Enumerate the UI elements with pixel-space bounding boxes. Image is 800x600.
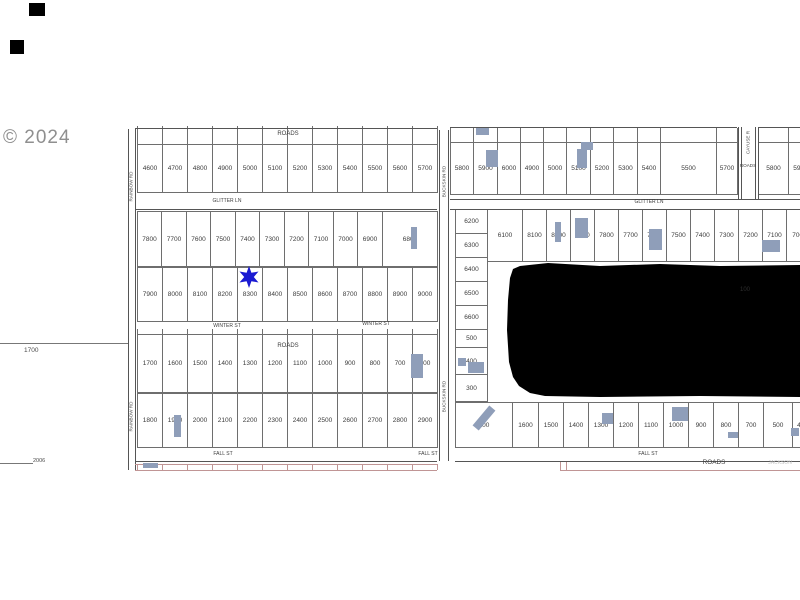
blob-lot-label: 100 — [740, 287, 750, 293]
parcel-7500[interactable]: 7500 — [210, 211, 236, 267]
parcel-8000[interactable]: 8000 — [162, 267, 188, 322]
lot-tick — [262, 329, 263, 335]
road-line — [738, 127, 739, 199]
building-footprint — [649, 229, 662, 250]
lot-tick — [637, 128, 638, 142]
parcel-1700[interactable]: 1700 — [137, 334, 163, 393]
parcel-2100[interactable]: 2100 — [212, 393, 238, 448]
parcel-7800[interactable]: 7800 — [594, 209, 619, 262]
lot-tick — [543, 128, 544, 142]
building-footprint — [411, 227, 417, 249]
parcel-4900[interactable]: 4900 — [520, 142, 544, 195]
parcel-5000[interactable]: 5000 — [543, 142, 567, 195]
parcel-900[interactable]: 900 — [688, 402, 714, 448]
parcel-500[interactable]: 500 — [763, 402, 793, 448]
parcel-2000[interactable]: 2000 — [187, 393, 213, 448]
parcel-7000[interactable]: 7000 — [333, 211, 358, 267]
parcel-6400[interactable]: 6400 — [455, 257, 488, 282]
copyright-watermark: © 2024 — [3, 127, 71, 149]
lot-tick — [362, 329, 363, 335]
parcel-7700[interactable]: 7700 — [161, 211, 187, 267]
parcel-1200[interactable]: 1200 — [613, 402, 639, 448]
road-label-roads-2: ROADS — [270, 343, 306, 349]
road-line — [560, 470, 800, 471]
parcel-7200[interactable]: 7200 — [738, 209, 763, 262]
building-footprint — [791, 428, 799, 436]
building-footprint — [577, 149, 587, 168]
parcel-5500[interactable]: 5500 — [660, 142, 717, 195]
parcel-7300[interactable]: 7300 — [259, 211, 285, 267]
parcel-7300[interactable]: 7300 — [714, 209, 739, 262]
road-label-roads-1: ROADS — [270, 131, 306, 137]
road-line — [135, 128, 437, 129]
parcel-6200[interactable]: 6200 — [455, 209, 488, 234]
lot-tick — [387, 329, 388, 335]
black-square — [29, 3, 45, 16]
lot-tick — [237, 329, 238, 335]
building-footprint — [672, 407, 688, 421]
parcel-7800[interactable]: 7800 — [137, 211, 162, 267]
building-footprint — [728, 432, 738, 438]
building-footprint — [476, 128, 489, 135]
road-line — [135, 464, 437, 465]
lot-tick — [660, 128, 661, 142]
parcel-4700[interactable]: 4700 — [162, 144, 188, 193]
lot-tick — [137, 329, 138, 335]
parcel-900[interactable]: 900 — [337, 334, 363, 393]
road-label-rainbow-rd-1: RAINBOW RD — [127, 157, 136, 217]
margin-label-upper: 1700 — [24, 348, 38, 355]
parcel-6100[interactable]: 6100 — [487, 209, 523, 262]
parcel-8600[interactable]: 8600 — [312, 267, 338, 322]
parcel-4800[interactable]: 4800 — [187, 144, 213, 193]
lot-tick — [212, 464, 213, 470]
road-label-jackson: JACKSON — [760, 461, 800, 466]
road-label-winter-st-1: WINTER ST — [200, 324, 254, 329]
road-label-buckskin-rd-2: BUCKSKIN RD — [440, 367, 449, 427]
road-line — [758, 127, 800, 128]
parcel-1800[interactable]: 1800 — [137, 393, 163, 448]
parcel-1600[interactable]: 1600 — [512, 402, 539, 448]
parcel-7100[interactable]: 7100 — [308, 211, 334, 267]
parcel-1600[interactable]: 1600 — [162, 334, 188, 393]
parcel-8800[interactable]: 8800 — [362, 267, 388, 322]
parcel-7200[interactable]: 7200 — [284, 211, 309, 267]
parcel-6300[interactable]: 6300 — [455, 233, 488, 258]
parcel-8700[interactable]: 8700 — [337, 267, 363, 322]
parcel-5600[interactable]: 5600 — [387, 144, 413, 193]
lot-tick — [312, 464, 313, 470]
lot-tick — [566, 128, 567, 142]
road-label-rainbow-rd-2: RAINBOW RD — [127, 387, 136, 447]
parcel-7500[interactable]: 7500 — [666, 209, 691, 262]
parcel-8900[interactable]: 8900 — [387, 267, 413, 322]
parcel-8100[interactable]: 8100 — [187, 267, 213, 322]
road-line — [455, 461, 800, 462]
lot-tick — [788, 128, 789, 142]
parcel-7100[interactable]: 7100 — [762, 209, 787, 262]
parcel-400[interactable]: 400 — [792, 402, 800, 448]
parcel-6600[interactable]: 6600 — [455, 305, 488, 330]
building-footprint — [174, 415, 181, 437]
parcel-7400[interactable]: 7400 — [235, 211, 260, 267]
lot-tick — [437, 329, 438, 335]
road-label-fall-st-1: FALL ST — [201, 452, 245, 457]
parcel-1300[interactable]: 1300 — [237, 334, 263, 393]
lot-tick — [473, 128, 474, 142]
lot-tick — [162, 464, 163, 470]
road-label-fall-st-3: FALL ST — [626, 452, 670, 457]
parcel-1000[interactable]: 1000 — [312, 334, 338, 393]
parcel-5100[interactable]: 5100 — [262, 144, 288, 193]
parcel-2400[interactable]: 2400 — [287, 393, 313, 448]
building-footprint — [468, 362, 484, 373]
road-line — [0, 463, 33, 464]
parcel-8200[interactable]: 8200 — [212, 267, 238, 322]
building-footprint — [555, 222, 561, 242]
lot-tick — [137, 464, 138, 470]
parcel-5200[interactable]: 5200 — [287, 144, 313, 193]
parcel-6800[interactable]: 6800 — [382, 211, 438, 267]
lot-tick — [337, 329, 338, 335]
parcel-2600[interactable]: 2600 — [337, 393, 363, 448]
parcel-300[interactable]: 300 — [455, 374, 488, 402]
building-footprint — [486, 150, 498, 167]
parcel-2300[interactable]: 2300 — [262, 393, 288, 448]
lot-tick — [412, 464, 413, 470]
parcel-500[interactable]: 500 — [455, 329, 488, 348]
road-label-buckskin-rd-1: BUCKSKIN RD — [440, 152, 449, 212]
plat-map[interactable]: © 2024 1700 2006 46004700480049005000510… — [0, 0, 800, 600]
road-line — [135, 209, 437, 210]
lot-tick — [187, 329, 188, 335]
road-line — [135, 461, 437, 462]
parcel-8100[interactable]: 8100 — [522, 209, 547, 262]
parcel-8500[interactable]: 8500 — [287, 267, 313, 322]
lot-tick — [312, 329, 313, 335]
parcel-5700[interactable]: 5700 — [412, 144, 438, 193]
road-line — [566, 461, 567, 470]
parcel-5800[interactable]: 5800 — [758, 142, 789, 195]
lot-tick — [237, 464, 238, 470]
lot-tick — [362, 464, 363, 470]
parcel-5700[interactable]: 5700 — [716, 142, 738, 195]
parcel-6900[interactable]: 6900 — [357, 211, 383, 267]
lot-tick — [187, 464, 188, 470]
parcel-100[interactable]: 100 — [455, 402, 513, 448]
building-footprint — [458, 358, 466, 366]
road-label-glitter-ln-2: GLITTER LN — [618, 200, 680, 205]
parcel-5500[interactable]: 5500 — [362, 144, 388, 193]
road-line — [0, 343, 128, 344]
parcel-1400[interactable]: 1400 — [212, 334, 238, 393]
parcel-2900[interactable]: 2900 — [412, 393, 438, 448]
parcel-8400[interactable]: 8400 — [262, 267, 288, 322]
parcel-6500[interactable]: 6500 — [455, 281, 488, 306]
lot-tick — [412, 329, 413, 335]
lot-tick — [437, 464, 438, 470]
building-footprint — [575, 218, 588, 238]
parcel-7900[interactable]: 7900 — [137, 267, 163, 322]
lot-tick — [337, 464, 338, 470]
parcel-700[interactable]: 700 — [387, 334, 413, 393]
parcel-1500[interactable]: 1500 — [538, 402, 564, 448]
parcel-5400[interactable]: 5400 — [337, 144, 363, 193]
parcel-5200[interactable]: 5200 — [590, 142, 614, 195]
parcel-5300[interactable]: 5300 — [613, 142, 638, 195]
building-footprint — [602, 413, 613, 424]
road-label-fall-st-2: FALL ST — [406, 452, 450, 457]
margin-label-lower: 2006 — [33, 459, 45, 465]
lot-tick — [520, 128, 521, 142]
black-square — [10, 40, 24, 54]
parcel-4600[interactable]: 4600 — [137, 144, 163, 193]
parcel-6000[interactable]: 6000 — [497, 142, 521, 195]
parcel-7000[interactable]: 7000 — [786, 209, 800, 262]
building-footprint — [143, 463, 158, 468]
road-label-roads-4: ROADS — [692, 460, 736, 466]
building-footprint — [762, 240, 780, 252]
lot-tick — [287, 464, 288, 470]
building-footprint — [411, 354, 423, 378]
parcel-2200[interactable]: 2200 — [237, 393, 263, 448]
parcel-5900[interactable]: 5900 — [788, 142, 800, 195]
parcel-2500[interactable]: 2500 — [312, 393, 338, 448]
lot-tick — [450, 128, 451, 142]
parcel-2700[interactable]: 2700 — [362, 393, 388, 448]
lot-tick — [162, 329, 163, 335]
parcel-5000[interactable]: 5000 — [237, 144, 263, 193]
lot-tick — [590, 128, 591, 142]
parcel-7600[interactable]: 7600 — [186, 211, 211, 267]
road-label-winter-st-2: WINTER ST — [349, 322, 403, 327]
lot-tick — [437, 126, 438, 144]
lot-tick — [716, 128, 717, 142]
parcel-7700[interactable]: 7700 — [618, 209, 643, 262]
lot-tick — [613, 128, 614, 142]
road-line — [450, 209, 800, 210]
road-line — [758, 127, 759, 199]
parcel-1300[interactable]: 1300 — [588, 402, 614, 448]
parcel-700[interactable]: 700 — [738, 402, 764, 448]
parcel-1500[interactable]: 1500 — [187, 334, 213, 393]
parcel-8300[interactable]: 8300 — [237, 267, 263, 322]
parcel-800[interactable]: 800 — [362, 334, 388, 393]
road-label-cayuse-rd: CAYUSE R — [744, 113, 753, 173]
parcel-800[interactable]: 800 — [713, 402, 739, 448]
parcel-4900[interactable]: 4900 — [212, 144, 238, 193]
road-label-glitter-ln-1: GLITTER LN — [197, 199, 257, 204]
road-line — [450, 127, 737, 128]
parcel-5400[interactable]: 5400 — [637, 142, 661, 195]
parcel-5800[interactable]: 5800 — [450, 142, 474, 195]
lot-tick — [287, 329, 288, 335]
lot-tick — [497, 128, 498, 142]
road-line — [135, 470, 437, 471]
road-line — [560, 461, 561, 470]
parcel-1400[interactable]: 1400 — [563, 402, 589, 448]
lot-tick — [262, 464, 263, 470]
parcel-5300[interactable]: 5300 — [312, 144, 338, 193]
lot-tick — [212, 329, 213, 335]
parcel-2800[interactable]: 2800 — [387, 393, 413, 448]
lot-tick — [387, 464, 388, 470]
parcel-7400[interactable]: 7400 — [690, 209, 715, 262]
parcel-1100[interactable]: 1100 — [638, 402, 664, 448]
parcel-9000[interactable]: 9000 — [412, 267, 438, 322]
